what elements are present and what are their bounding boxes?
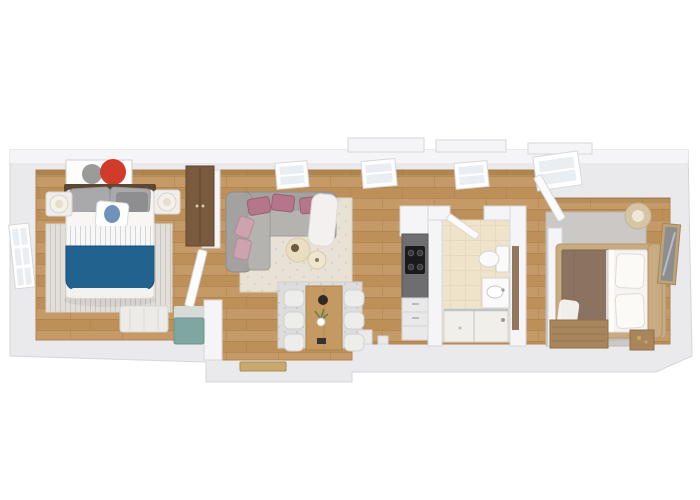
shower-drain [458, 326, 461, 329]
burner [408, 250, 414, 256]
wardrobe-handle [202, 205, 205, 208]
nightstand-gold-decor [645, 341, 648, 344]
dormer-block-2 [436, 140, 506, 152]
teal-bench [174, 318, 204, 344]
coffee-table-tray [291, 244, 299, 252]
cooktop [405, 246, 425, 274]
entrance-door [240, 362, 286, 371]
bathroom-wood-panel [512, 246, 519, 330]
bed1-foot-sheet [70, 288, 150, 298]
bedroom1-wall-art [66, 159, 132, 186]
vase [317, 318, 325, 326]
sink-basin [487, 286, 503, 298]
dining-chair [344, 290, 364, 307]
floor-plan-canvas [0, 0, 700, 500]
pink-pillow [247, 196, 271, 216]
cabinet-handle [412, 303, 419, 305]
coffee-table-item [315, 258, 319, 262]
bed1-striped-blanket [68, 226, 152, 248]
white-throw [307, 193, 338, 247]
pink-pillow [271, 194, 295, 213]
dining-chair [284, 312, 304, 329]
table-decor [317, 338, 326, 344]
dining-bowl [318, 295, 328, 305]
bed2-post-knob [557, 245, 563, 251]
dining-chair [284, 334, 304, 351]
nightstand-gold-decor [637, 336, 641, 340]
skylight-2 [361, 159, 397, 189]
lamp-right-shade [163, 198, 171, 206]
shower-head [501, 318, 505, 322]
bathroom-wall-top-b [484, 206, 512, 220]
partition-bedroom1-lower [204, 300, 222, 360]
bed2-pillow-bottom [615, 293, 645, 328]
burner [417, 250, 423, 256]
cabinet-handle [412, 317, 419, 319]
dining-chair [284, 290, 304, 307]
art-grey-circle [82, 164, 102, 184]
burner [408, 264, 414, 270]
wardrobe-handle [196, 205, 199, 208]
floor-lamp-shade [632, 210, 644, 222]
kitchen-group [402, 234, 428, 340]
lamp-left-shade [55, 200, 63, 208]
burner [417, 264, 423, 270]
floor-plan-svg [0, 0, 700, 500]
bed1-blue-blanket [66, 246, 154, 290]
bed2-pillow-top [615, 253, 645, 288]
dining-chair [344, 334, 364, 351]
wall-nub-2 [378, 336, 388, 344]
dormer-block-1 [348, 138, 424, 152]
art-red-circle [100, 159, 126, 185]
skylight-1 [275, 161, 309, 190]
kitchen-upper-unit [400, 206, 428, 236]
dining-group [284, 286, 364, 351]
dining-chair [344, 312, 364, 329]
toilet-bowl [479, 251, 499, 267]
dormer-block-3 [528, 143, 592, 154]
top-wall-shadow-right [546, 198, 670, 203]
bedroom2-nightstand [630, 330, 654, 350]
shower-tray [444, 310, 508, 342]
sink-faucet [501, 288, 504, 291]
skylight-3 [454, 161, 489, 190]
bathroom-wall-left [428, 206, 442, 346]
